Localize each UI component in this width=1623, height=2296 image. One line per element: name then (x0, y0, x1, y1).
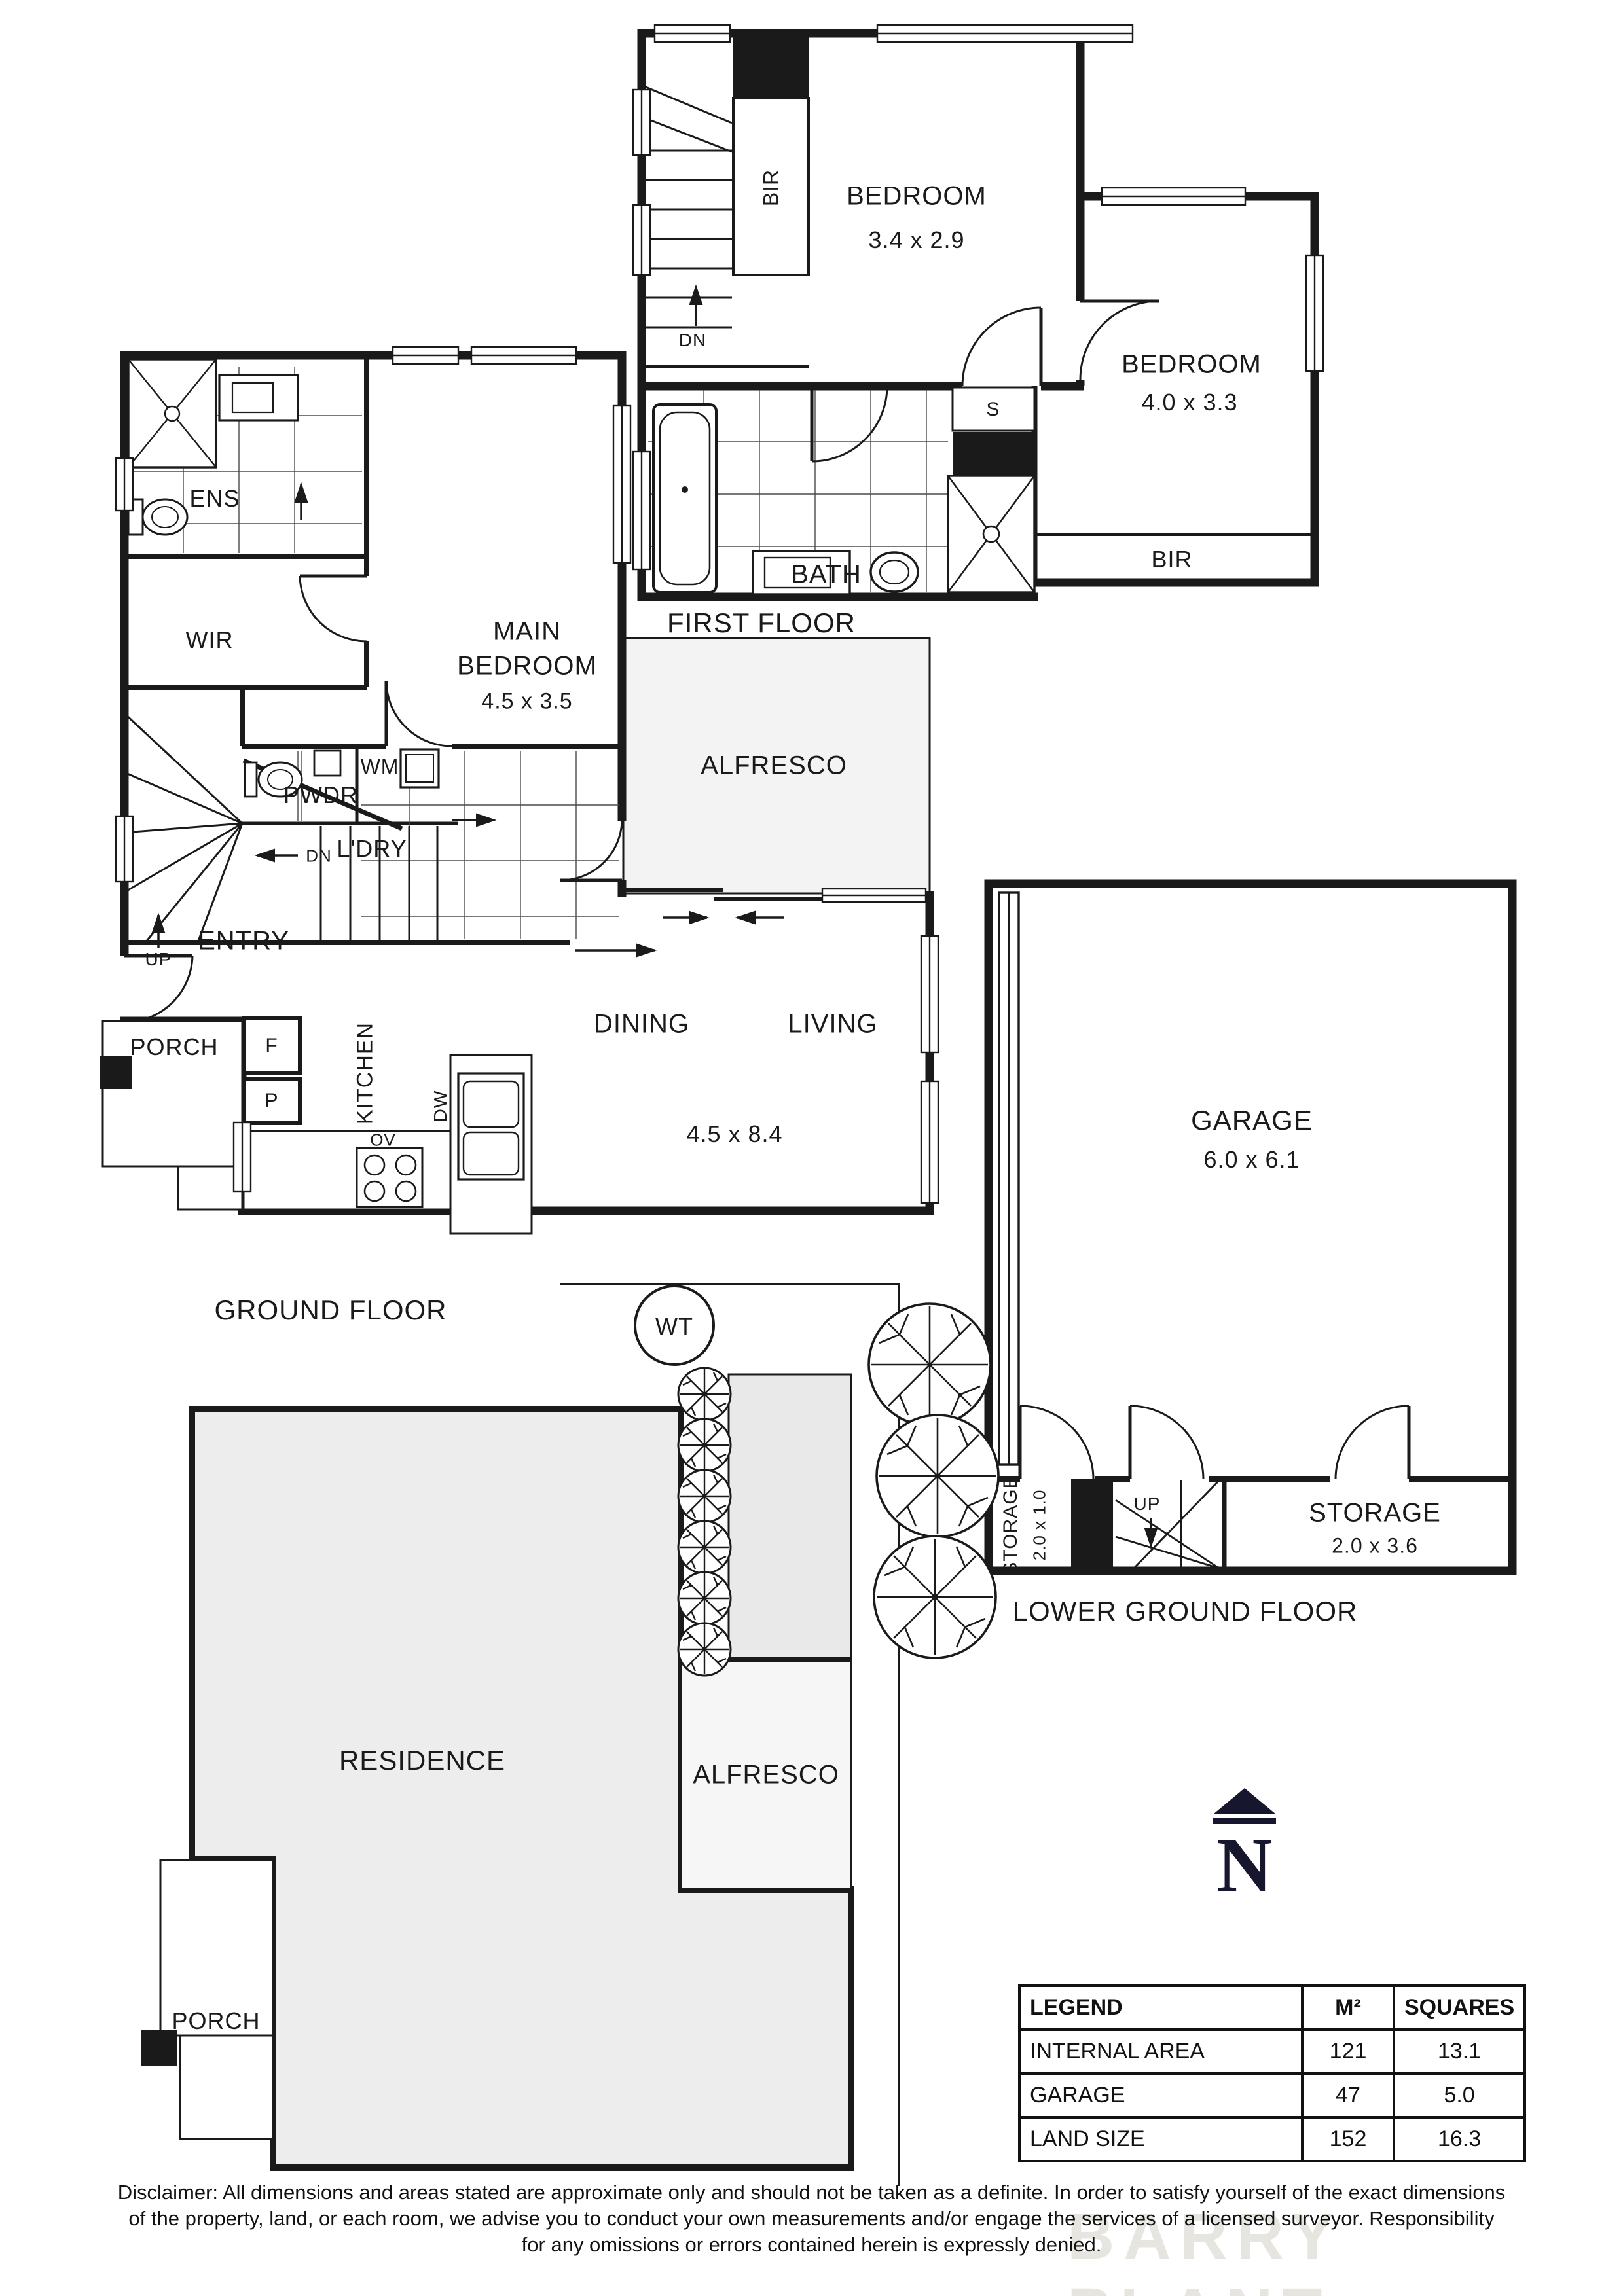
floor-title-lower-ground: LOWER GROUND FLOOR (1013, 1596, 1358, 1627)
appliance-label-ov: OV (370, 1130, 396, 1151)
room-label-garage: GARAGE (1191, 1105, 1313, 1136)
legend-cell-m2: 121 (1302, 2030, 1394, 2073)
legend-cell-squares: 16.3 (1394, 2117, 1525, 2161)
first-floor-plan (633, 25, 1323, 601)
site-label-residence: RESIDENCE (339, 1745, 505, 1776)
room-label-living: LIVING (788, 1010, 877, 1039)
stair-label-dn-gf: DN (306, 846, 332, 867)
room-label-ldry: L'DRY (337, 835, 407, 863)
room-label-bedroom2: BEDROOM (1122, 350, 1262, 380)
stair-label-dn-ff: DN (679, 330, 706, 351)
legend-header-squares: SQUARES (1394, 1986, 1525, 2030)
north-letter: N (1216, 1821, 1272, 1910)
site-label-water-tank: WT (655, 1313, 693, 1340)
closet-label-fridge: F (265, 1035, 278, 1057)
room-dims-garage: 6.0 x 6.1 (1203, 1146, 1300, 1174)
room-label-porch-gf: PORCH (130, 1033, 218, 1061)
closet-label-linen: S (986, 399, 1000, 421)
floor-title-first: FIRST FLOOR (667, 607, 856, 639)
floorplan-page: BEDROOM 3.4 x 2.9 BEDROOM 4.0 x 3.3 BATH… (0, 0, 1623, 2296)
lower-ground-floor-plan (989, 884, 1512, 1571)
room-label-main-bedroom-2: BEDROOM (457, 652, 597, 681)
room-dims-storage1: 2.0 x 1.0 (1030, 1490, 1050, 1561)
legend-row-land-size: LAND SIZE 152 16.3 (1019, 2117, 1525, 2161)
site-plan (141, 1284, 998, 2186)
legend-row-garage: GARAGE 47 5.0 (1019, 2073, 1525, 2117)
room-label-ens: ENS (189, 485, 240, 512)
legend-cell-label: GARAGE (1019, 2073, 1302, 2117)
room-label-bath: BATH (791, 560, 862, 590)
room-label-main-bedroom-1: MAIN (493, 617, 561, 647)
room-label-entry: ENTRY (198, 927, 289, 956)
north-arrow-icon (1213, 1788, 1276, 1824)
legend-table: LEGEND M² SQUARES INTERNAL AREA 121 13.1… (1018, 1984, 1526, 2162)
stair-label-up-gf: UP (145, 949, 172, 970)
appliance-label-dw: DW (430, 1090, 451, 1122)
legend-cell-squares: 13.1 (1394, 2030, 1525, 2073)
room-label-bedroom1: BEDROOM (847, 182, 987, 211)
legend-header-label: LEGEND (1019, 1986, 1302, 2030)
room-dims-storage2: 2.0 x 3.6 (1332, 1534, 1418, 1558)
appliance-label-wm: WM (361, 755, 399, 780)
legend-header-row: LEGEND M² SQUARES (1019, 1986, 1525, 2030)
room-dims-main-bedroom: 4.5 x 3.5 (481, 689, 572, 715)
legend-row-internal-area: INTERNAL AREA 121 13.1 (1019, 2030, 1525, 2073)
disclaimer-line-3: for any omissions or errors contained he… (0, 2233, 1623, 2257)
site-label-alfresco: ALFRESCO (693, 1761, 839, 1790)
legend-cell-label: INTERNAL AREA (1019, 2030, 1302, 2073)
room-label-wir: WIR (186, 626, 234, 654)
floorplan-drawing (0, 0, 1623, 2296)
disclaimer-line-2: of the property, land, or each room, we … (0, 2207, 1623, 2231)
room-dims-bedroom2: 4.0 x 3.3 (1141, 389, 1237, 416)
room-label-alfresco-gf: ALFRESCO (701, 751, 847, 781)
disclaimer-line-1: Disclaimer: All dimensions and areas sta… (0, 2181, 1623, 2204)
legend-cell-label: LAND SIZE (1019, 2117, 1302, 2161)
closet-label-pantry: P (264, 1090, 278, 1112)
room-dims-bedroom1: 3.4 x 2.9 (868, 226, 964, 254)
room-label-dining: DINING (594, 1010, 689, 1039)
closet-label-bir-bedroom2: BIR (1151, 546, 1192, 573)
room-label-pwdr: PWDR (283, 781, 358, 809)
closet-label-bir-stair: BIR (759, 170, 784, 206)
legend-header-m2: M² (1302, 1986, 1394, 2030)
stair-label-up-lg: UP (1134, 1494, 1161, 1515)
legend-cell-m2: 152 (1302, 2117, 1394, 2161)
legend-cell-m2: 47 (1302, 2073, 1394, 2117)
room-label-storage1: STORAGE (1000, 1475, 1022, 1575)
room-label-kitchen: KITCHEN (353, 1022, 378, 1124)
room-label-storage2: STORAGE (1309, 1499, 1441, 1528)
site-label-porch: PORCH (172, 2007, 260, 2035)
ground-floor-plan (100, 347, 938, 1234)
floor-title-ground: GROUND FLOOR (214, 1295, 447, 1326)
room-dims-living: 4.5 x 8.4 (686, 1121, 782, 1148)
legend-cell-squares: 5.0 (1394, 2073, 1525, 2117)
